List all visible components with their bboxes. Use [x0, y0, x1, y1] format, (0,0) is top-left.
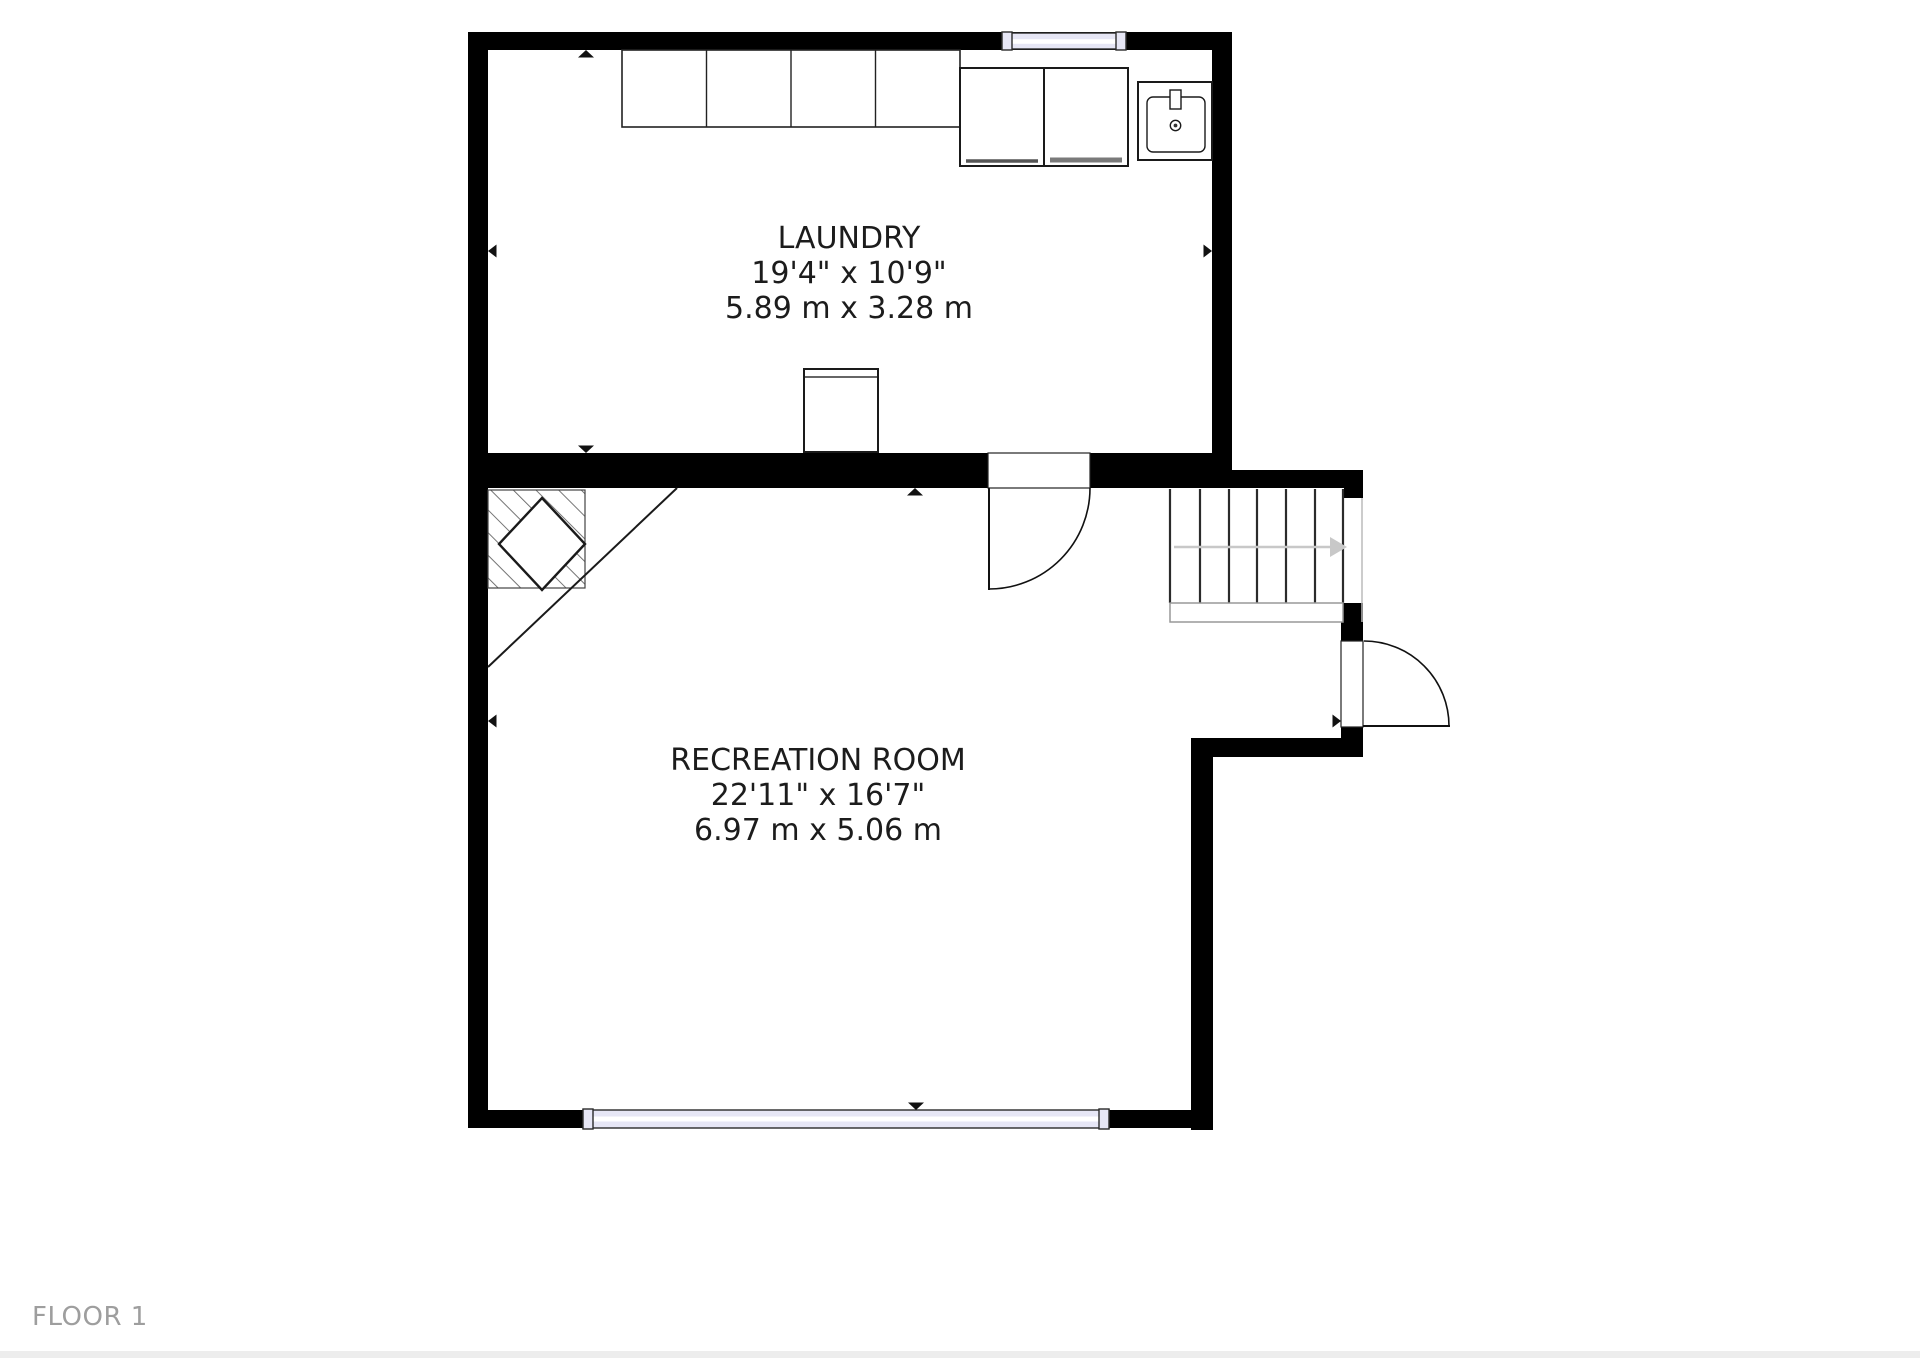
door-swing-arc — [1364, 641, 1449, 726]
window-glazing-line — [584, 1117, 1108, 1122]
floorplan-drawing — [0, 0, 1920, 1358]
washer-dryer — [960, 68, 1128, 166]
door-swing-arc — [989, 488, 1090, 589]
stair-direction-arrow-icon — [1330, 537, 1347, 557]
stair-nook-corner-wall — [1344, 470, 1363, 498]
laundry-top-marker-icon — [578, 50, 594, 58]
recreation-left-marker-icon — [488, 715, 497, 728]
water-heater — [804, 369, 878, 452]
window-end-cap — [1099, 1109, 1109, 1129]
corner-fireplace — [488, 488, 677, 667]
dryer — [1044, 68, 1128, 166]
laundry-sink — [1138, 82, 1212, 160]
window-glazing-line — [1003, 39, 1125, 44]
page-bottom-edge — [0, 1351, 1920, 1358]
right-wall-above-entry-door — [1341, 603, 1363, 641]
laundry-right-marker-icon — [1204, 245, 1213, 258]
staircase — [1170, 489, 1362, 622]
door-opening — [1341, 641, 1363, 727]
exterior-wall-left — [468, 32, 488, 1128]
recreation-top-marker-icon — [907, 488, 923, 496]
window-end-cap — [583, 1109, 593, 1129]
recreation-window — [583, 1109, 1109, 1129]
room-dimensions-imperial: 19'4" x 10'9" — [725, 256, 973, 291]
step-wall — [1191, 738, 1363, 757]
exterior-entry-door — [1341, 641, 1450, 727]
recreation-right-marker-icon — [1333, 715, 1342, 728]
recreation-bottom-marker-icon — [908, 1103, 924, 1111]
laundry-left-marker-icon — [488, 245, 497, 258]
room-name: LAUNDRY — [725, 221, 973, 256]
sink-drain-dot — [1174, 124, 1178, 128]
room-dimensions-imperial: 22'11" x 16'7" — [670, 778, 965, 813]
laundry-right-wall — [1212, 32, 1232, 488]
laundry-bottom-marker-icon — [578, 446, 594, 454]
exterior-wall-right-lower — [1191, 738, 1213, 1130]
interior-door-laundry — [988, 453, 1090, 590]
cabinet-run — [622, 50, 960, 127]
washer — [960, 68, 1044, 166]
floorplan-canvas: LAUNDRY 19'4" x 10'9" 5.89 m x 3.28 m RE… — [0, 0, 1920, 1358]
stair-nook-top-wall — [1232, 470, 1344, 488]
interior-shared-wall — [468, 453, 1232, 488]
window-end-cap — [1116, 32, 1126, 50]
room-dimensions-metric: 6.97 m x 5.06 m — [670, 813, 965, 848]
door-opening — [988, 453, 1090, 488]
room-name: RECREATION ROOM — [670, 743, 965, 778]
floor-label: FLOOR 1 — [32, 1302, 148, 1332]
sink-faucet-icon — [1170, 90, 1181, 109]
room-label-recreation: RECREATION ROOM 22'11" x 16'7" 6.97 m x … — [670, 743, 965, 848]
laundry-window — [1002, 32, 1126, 50]
room-label-laundry: LAUNDRY 19'4" x 10'9" 5.89 m x 3.28 m — [725, 221, 973, 326]
stair-landing-strip — [1170, 603, 1343, 622]
window-end-cap — [1002, 32, 1012, 50]
room-dimensions-metric: 5.89 m x 3.28 m — [725, 291, 973, 326]
water-heater-outline — [804, 369, 878, 452]
